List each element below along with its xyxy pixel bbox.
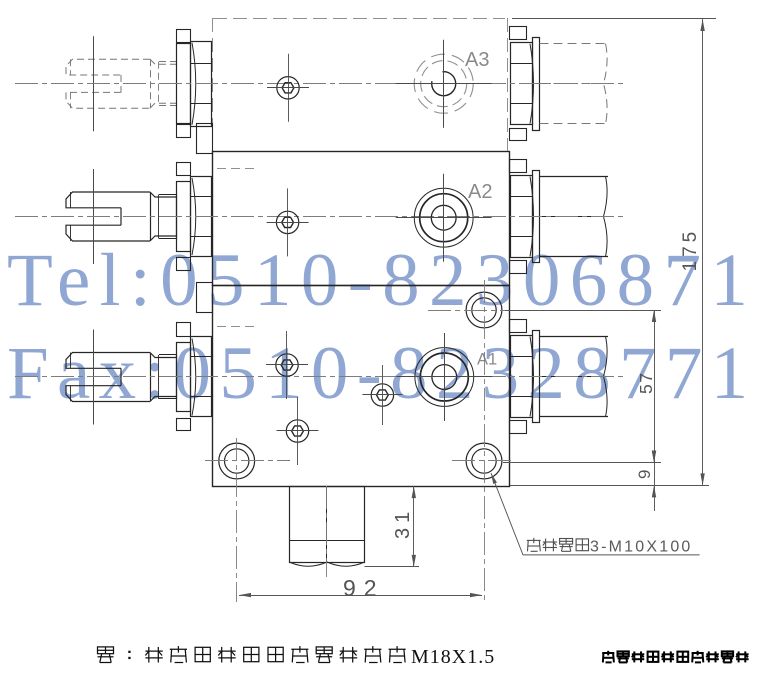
- svg-text:57: 57: [636, 372, 656, 394]
- svg-text:M18X1.5: M18X1.5: [411, 646, 495, 668]
- svg-text:A1: A1: [477, 351, 497, 369]
- svg-text:A3: A3: [465, 49, 489, 71]
- svg-text:Tel:0510-82306871: Tel:0510-82306871: [7, 239, 757, 322]
- svg-text:A2: A2: [468, 181, 492, 203]
- svg-text:92: 92: [343, 575, 385, 601]
- svg-text:3-M10X100: 3-M10X100: [590, 539, 693, 556]
- svg-text:9: 9: [635, 470, 654, 479]
- svg-text:175: 175: [680, 228, 701, 272]
- svg-text:31: 31: [392, 507, 414, 539]
